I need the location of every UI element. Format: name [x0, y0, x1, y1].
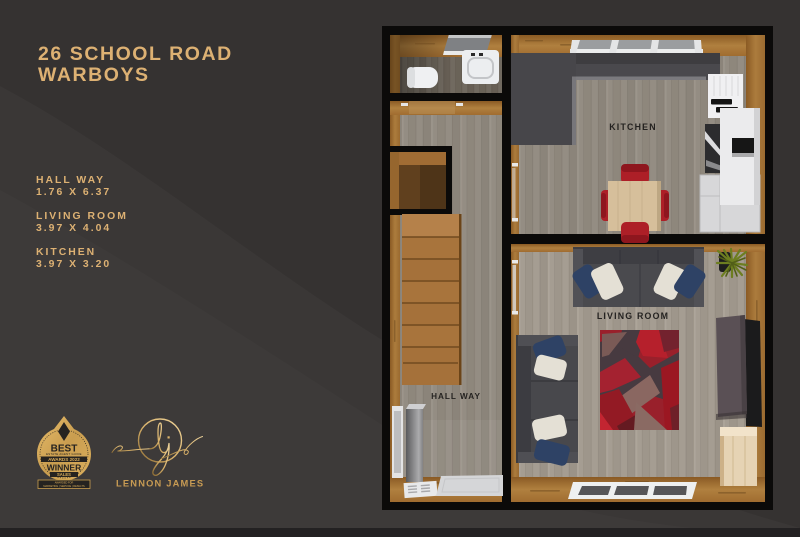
svg-text:LIVING ROOM: LIVING ROOM [597, 311, 669, 321]
svg-text:KITCHEN: KITCHEN [609, 122, 657, 132]
svg-text:HALL WAY: HALL WAY [431, 392, 481, 401]
